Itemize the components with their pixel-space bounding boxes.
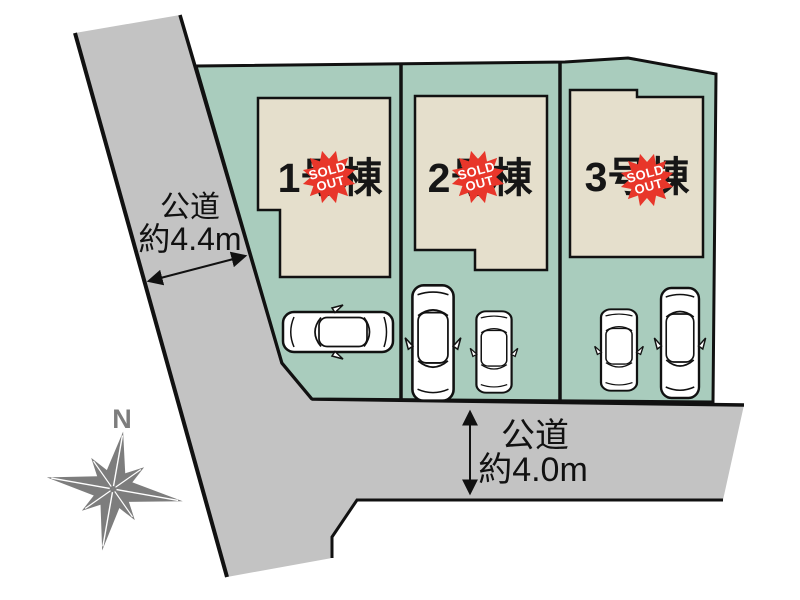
- car-icon-lot3-large: [654, 288, 705, 398]
- car-icon-lot3-small: [595, 309, 644, 390]
- road-left-name: 公道: [160, 191, 220, 224]
- north-label: N: [112, 404, 132, 434]
- car-icon-lot2-large: [405, 285, 461, 401]
- road-left-width: 約4.4m: [138, 221, 241, 257]
- car-icon-lot1: [283, 305, 393, 359]
- car-icon-lot2-small: [470, 311, 518, 392]
- site-plan: 1号棟 2号棟 3号棟 SOLD OUT SOLD OUT SOLD OUT 公…: [0, 0, 800, 600]
- road-bottom-name: 公道: [501, 417, 569, 455]
- road-bottom-width: 約4.0m: [478, 451, 588, 489]
